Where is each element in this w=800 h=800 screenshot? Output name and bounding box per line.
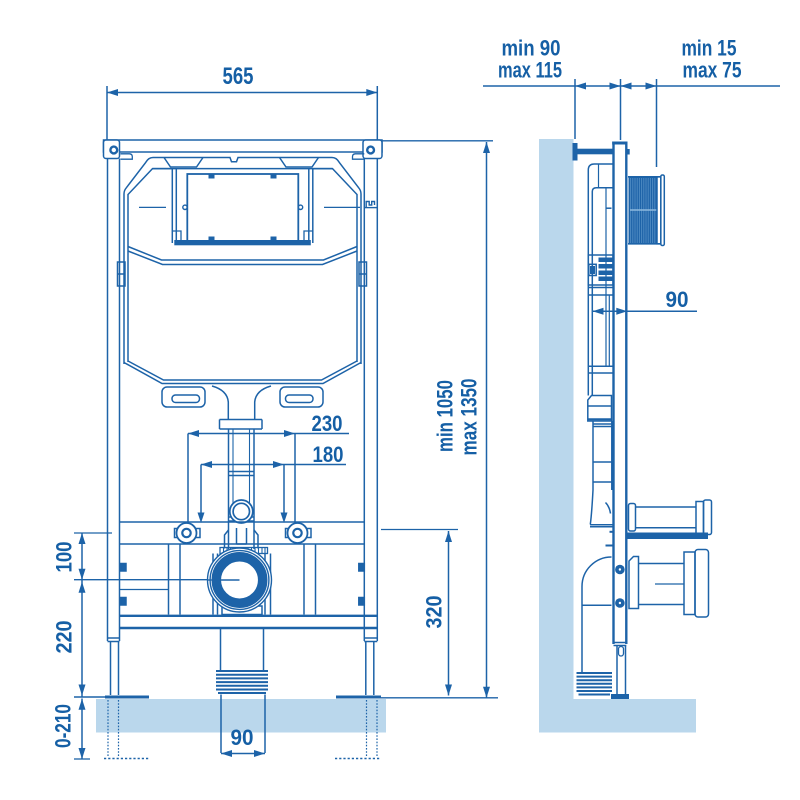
svg-text:100: 100 [52, 542, 77, 573]
svg-text:565: 565 [223, 63, 254, 90]
svg-text:max 115: max 115 [498, 58, 562, 83]
svg-text:max 75: max 75 [683, 58, 742, 83]
svg-text:320: 320 [422, 596, 447, 629]
svg-text:90: 90 [666, 287, 689, 312]
svg-text:180: 180 [313, 442, 344, 467]
svg-text:0-210: 0-210 [51, 704, 76, 748]
svg-text:min 1050: min 1050 [433, 380, 458, 452]
svg-text:220: 220 [52, 621, 77, 654]
svg-text:90: 90 [231, 725, 254, 750]
svg-text:max 1350: max 1350 [457, 379, 482, 456]
svg-text:230: 230 [312, 411, 343, 436]
